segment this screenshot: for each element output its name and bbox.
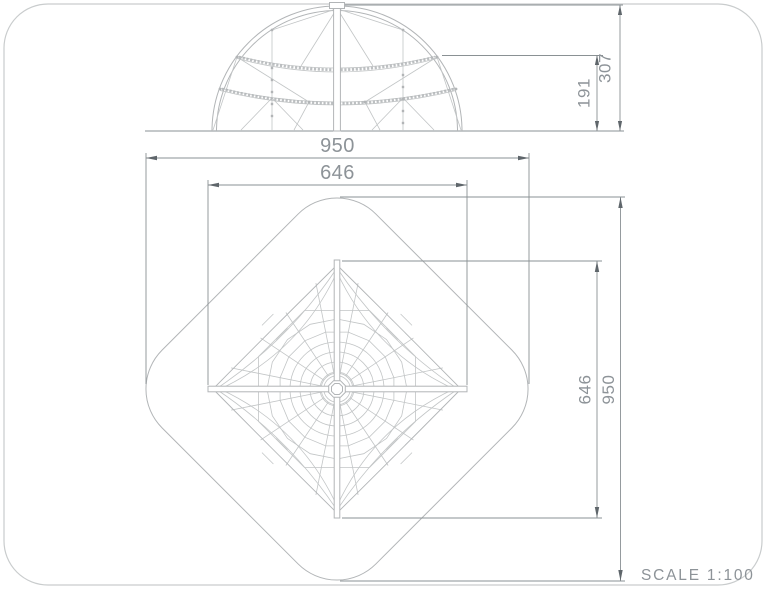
technical-drawing: 191 307 <box>0 0 768 594</box>
elevation-view: 191 307 <box>145 3 624 132</box>
dim-label-inner-depth: 646 <box>576 375 595 405</box>
central-mast <box>334 8 341 131</box>
dim-label-outer-depth: 950 <box>599 375 618 405</box>
dimension-net-height: 191 <box>442 55 603 131</box>
dim-label-outer-width: 950 <box>320 135 355 157</box>
frame-bars <box>208 260 467 518</box>
dim-label-total-height: 307 <box>596 53 615 83</box>
dimension-total-height: 307 <box>345 5 623 131</box>
plan-view: 950 646 646 950 <box>123 135 625 594</box>
elevation-dimensions: 191 307 <box>345 5 623 131</box>
mast-cap <box>330 3 345 9</box>
drawing-sheet: 191 307 <box>0 0 768 594</box>
dim-label-net-height: 191 <box>575 78 594 108</box>
scale-label: SCALE 1:100 <box>641 567 755 584</box>
dim-label-inner-width: 646 <box>320 162 355 184</box>
elevation-structure <box>145 3 624 132</box>
